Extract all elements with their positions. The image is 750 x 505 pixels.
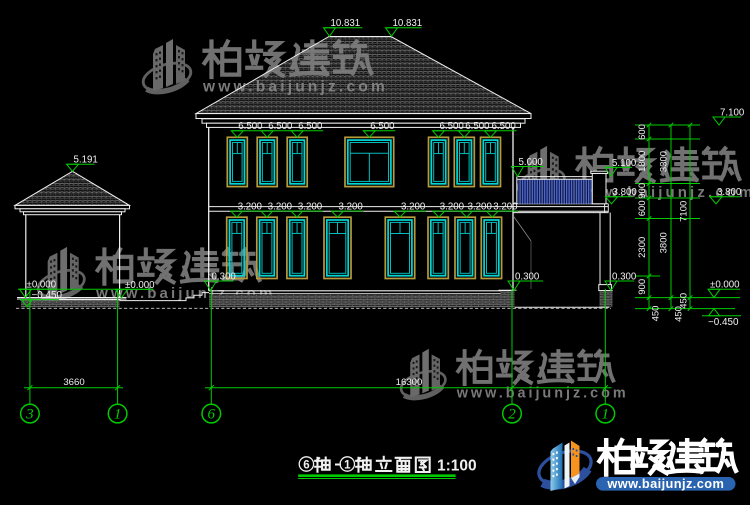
svg-text:−0.450: −0.450 [708,317,739,328]
svg-text:7.100: 7.100 [720,107,745,118]
svg-text:−0.450: −0.450 [32,290,63,301]
svg-text:3.200: 3.200 [238,201,263,212]
svg-text:1: 1 [602,407,610,423]
svg-text:±0.000: ±0.000 [710,280,740,291]
svg-text:450: 450 [679,293,690,309]
svg-text:3.200: 3.200 [298,201,323,212]
svg-text:600: 600 [637,200,648,216]
svg-text:600: 600 [637,124,648,140]
svg-text:3.800: 3.800 [613,187,638,198]
svg-text:5.100: 5.100 [612,158,637,169]
svg-text:900: 900 [637,183,648,199]
svg-text:6.500: 6.500 [298,121,323,132]
svg-text:0.300: 0.300 [515,271,540,282]
svg-text:3300: 3300 [659,151,670,172]
svg-text:6.500: 6.500 [268,121,293,132]
svg-text:16300: 16300 [396,377,423,388]
svg-text:www.baijunjz.com: www.baijunjz.com [606,476,724,491]
svg-text:0.300: 0.300 [612,271,637,282]
svg-text:3800: 3800 [659,232,670,253]
svg-text:6.500: 6.500 [238,121,263,132]
svg-text:3.200: 3.200 [493,201,518,212]
svg-text:7100: 7100 [679,201,690,222]
svg-text:3.800: 3.800 [717,187,742,198]
svg-text:10.831: 10.831 [393,18,423,29]
svg-text:3.200: 3.200 [268,201,293,212]
svg-text:6.500: 6.500 [492,121,517,132]
svg-text:www.baijunjz.com: www.baijunjz.com [202,79,388,96]
svg-text:5.000: 5.000 [519,157,544,168]
svg-text:5.191: 5.191 [74,155,98,166]
svg-text:450: 450 [651,306,662,322]
svg-text:3.200: 3.200 [339,201,364,212]
svg-text:1: 1 [114,407,122,423]
svg-text:900: 900 [637,279,648,295]
svg-text:1: 1 [344,459,351,471]
svg-text:2300: 2300 [637,237,648,258]
svg-text:3660: 3660 [63,377,84,388]
svg-text:6.500: 6.500 [370,121,395,132]
svg-text:10.831: 10.831 [331,18,361,29]
svg-text:2: 2 [508,407,516,423]
svg-text:1:100: 1:100 [437,457,477,474]
svg-text:3.200: 3.200 [401,201,426,212]
svg-text:3: 3 [25,407,34,423]
svg-text:1800: 1800 [637,151,648,172]
svg-text:0.300: 0.300 [212,271,237,282]
svg-text:6: 6 [303,459,309,471]
svg-text:6: 6 [208,407,216,423]
